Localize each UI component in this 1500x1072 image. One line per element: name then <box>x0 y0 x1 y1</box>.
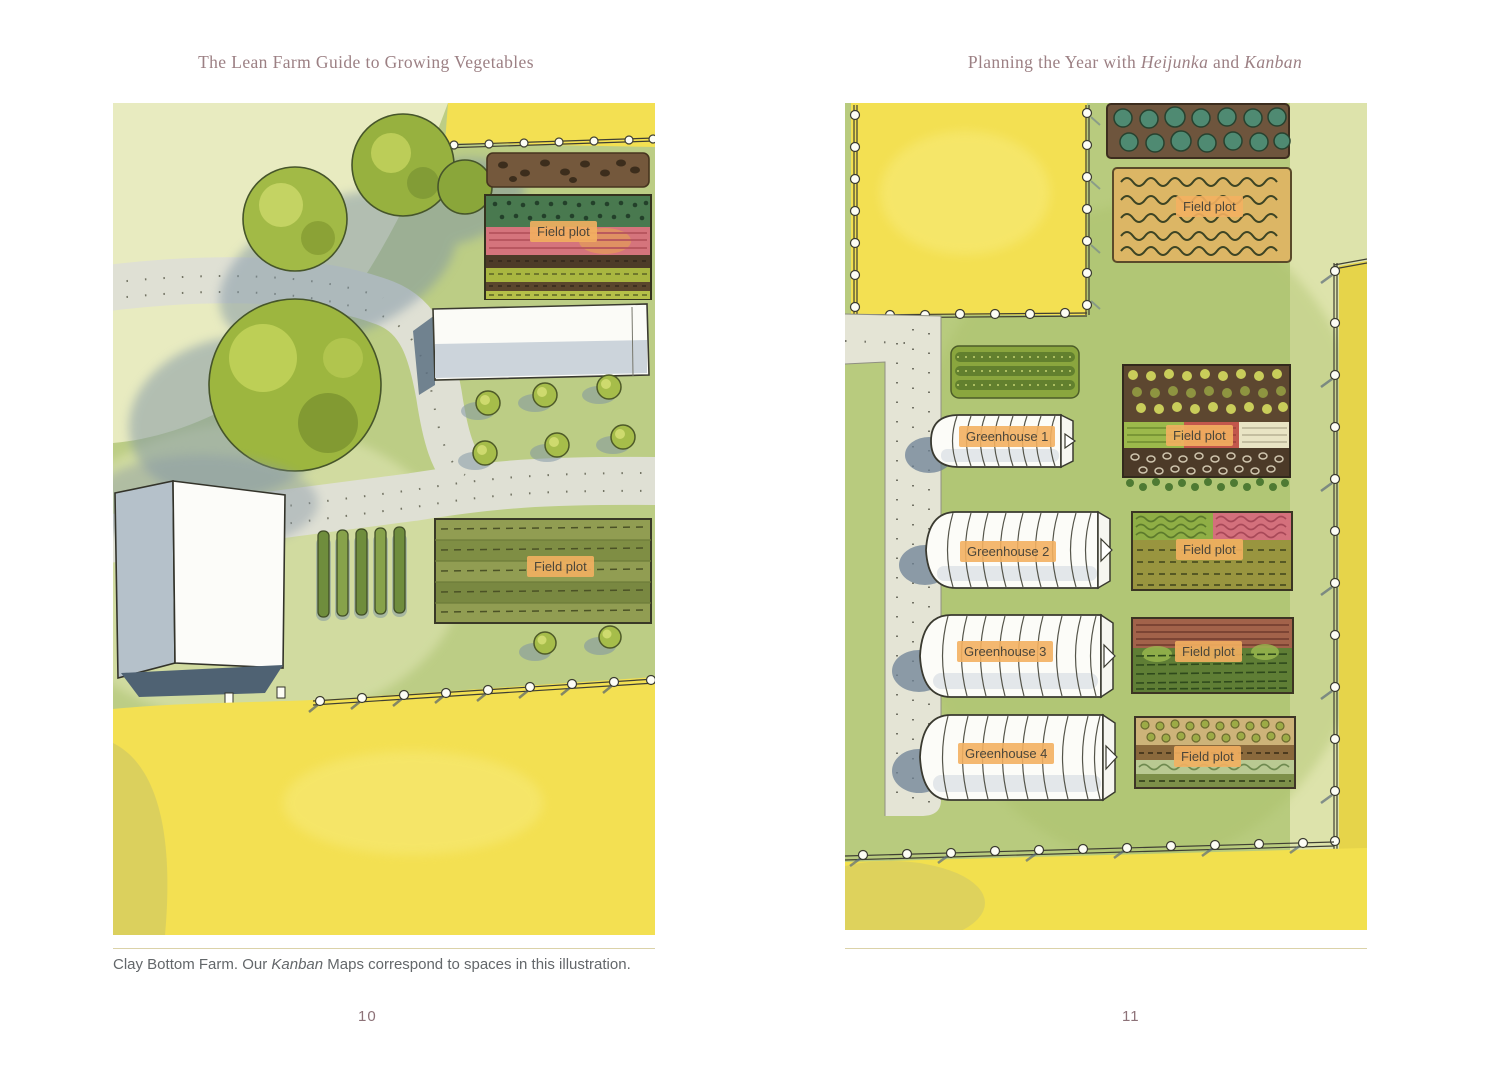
label-field-plot-3: Field plot <box>1175 641 1242 662</box>
caption-rule-left <box>113 948 655 949</box>
book-spread: The Lean Farm Guide to Growing Vegetable… <box>0 0 1500 1072</box>
caption-rule-right <box>845 948 1367 949</box>
label-field-plot-lower-left-map: Field plot <box>527 556 594 577</box>
asparagus-plot <box>951 346 1079 398</box>
left-page-number: 10 <box>358 1008 377 1025</box>
right-head-conjunction: and <box>1208 52 1244 72</box>
label-field-plot-top-right-map: Field plot <box>1176 196 1243 217</box>
label-field-plot-upper-left-map: Field plot <box>530 221 597 242</box>
label-greenhouse-4: Greenhouse 4 <box>958 743 1054 764</box>
right-head-prefix: Planning the Year with <box>968 52 1141 72</box>
right-page-number: 11 <box>1122 1008 1140 1025</box>
label-greenhouse-2: Greenhouse 2 <box>960 541 1056 562</box>
caption-term: Kanban <box>271 956 323 973</box>
label-field-plot-1: Field plot <box>1166 425 1233 446</box>
caption-prefix: Clay Bottom Farm. Our <box>113 956 271 973</box>
left-running-head: The Lean Farm Guide to Growing Vegetable… <box>96 52 636 73</box>
right-head-term1: Heijunka <box>1141 52 1208 72</box>
right-map-illustration <box>845 103 1367 930</box>
right-head-term2: Kanban <box>1244 52 1302 72</box>
right-running-head: Planning the Year with Heijunka and Kanb… <box>875 52 1395 73</box>
crop-rows <box>316 527 407 621</box>
label-field-plot-4: Field plot <box>1174 746 1241 767</box>
caption-suffix: Maps correspond to spaces in this illust… <box>323 956 631 973</box>
label-field-plot-2: Field plot <box>1176 539 1243 560</box>
label-greenhouse-1: Greenhouse 1 <box>959 426 1055 447</box>
cabbage-plot <box>1107 104 1290 158</box>
farm-building <box>115 481 285 704</box>
label-greenhouse-3: Greenhouse 3 <box>957 641 1053 662</box>
yellow-field-top <box>851 103 1101 320</box>
left-running-head-text: The Lean Farm Guide to Growing Vegetable… <box>198 52 534 72</box>
figure-caption: Clay Bottom Farm. Our Kanban Maps corres… <box>113 956 673 973</box>
